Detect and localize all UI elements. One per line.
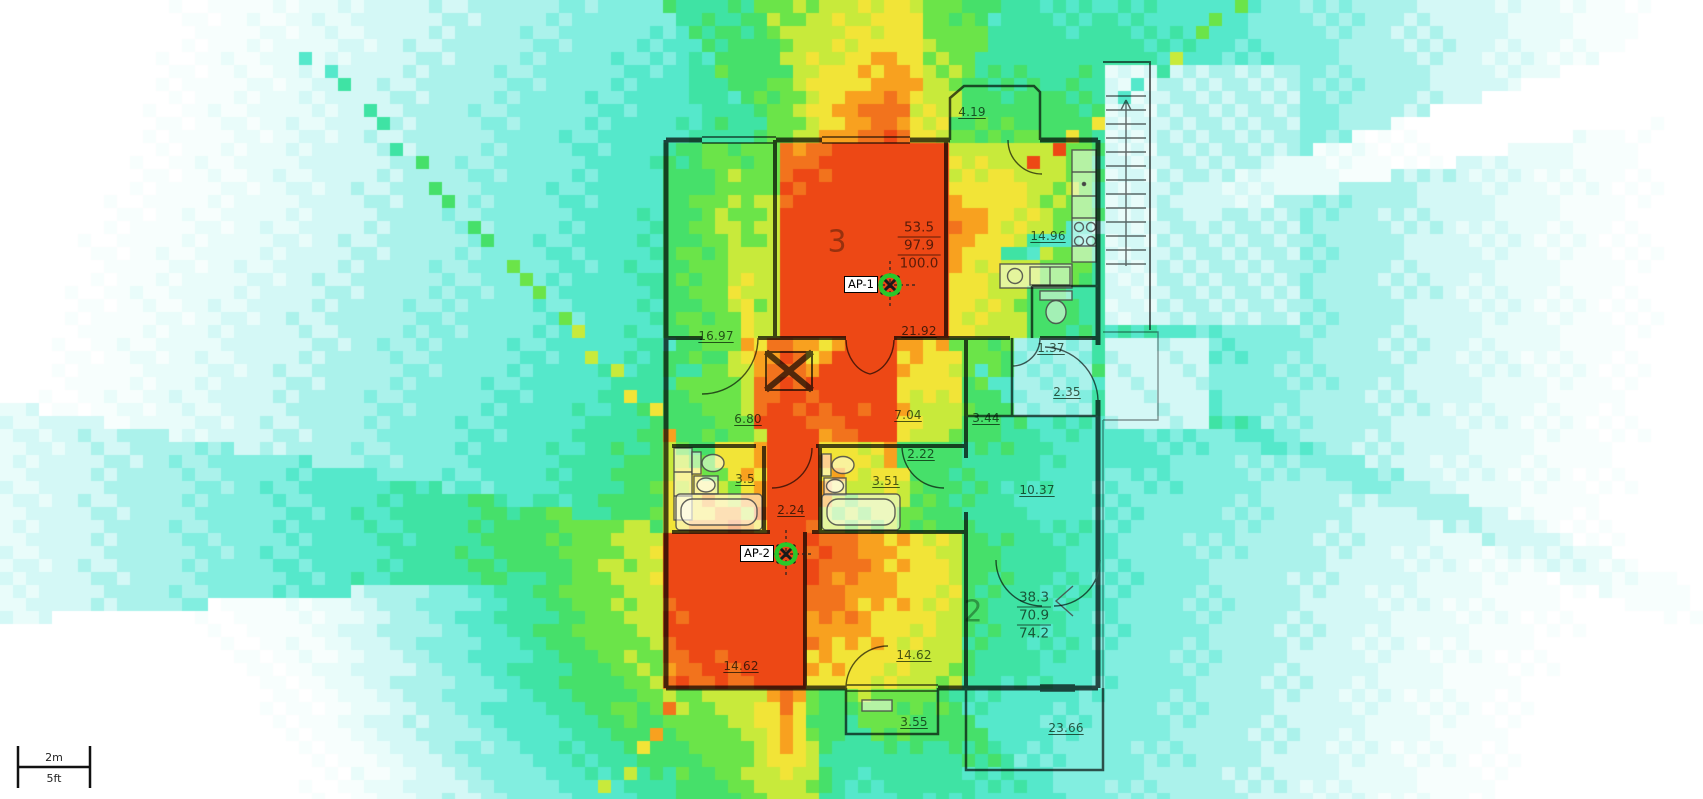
access-points-layer: AP-1AP-2 xyxy=(0,0,1703,799)
scale-imperial-label: 5ft xyxy=(47,772,63,785)
scale-bar: 2m 5ft xyxy=(12,742,108,796)
site-survey-map: 4.1916.9721.9214.961.372.356.807.043.442… xyxy=(0,0,1703,799)
scale-metric-label: 2m xyxy=(45,751,63,764)
ap-label[interactable]: AP-1 xyxy=(844,276,878,293)
ap-label[interactable]: AP-2 xyxy=(740,545,774,562)
